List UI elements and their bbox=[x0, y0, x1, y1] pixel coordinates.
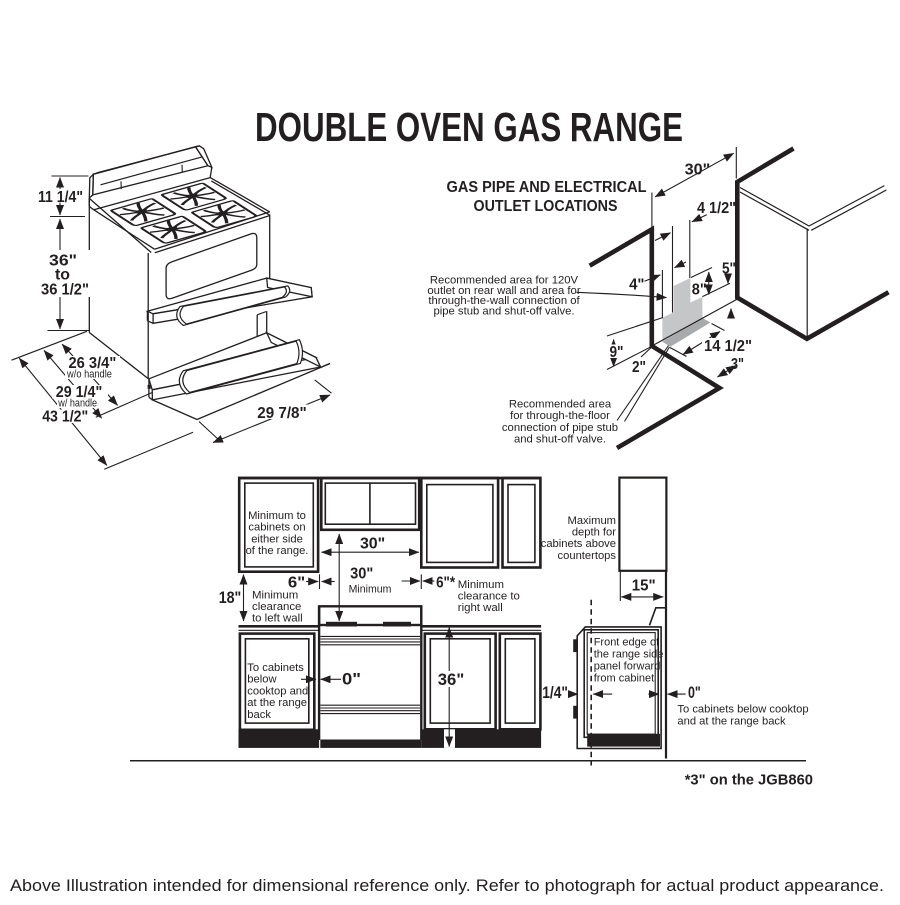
svg-text:below: below bbox=[247, 674, 277, 686]
svg-text:w/o handle: w/o handle bbox=[66, 369, 112, 381]
svg-text:either side: either side bbox=[251, 533, 303, 545]
svg-text:4": 4" bbox=[629, 277, 644, 294]
svg-text:Minimum to: Minimum to bbox=[248, 510, 306, 522]
svg-text:cabinets on: cabinets on bbox=[248, 522, 305, 534]
svg-text:5": 5" bbox=[722, 261, 736, 278]
svg-text:from cabinet: from cabinet bbox=[594, 672, 655, 684]
svg-text:to left wall: to left wall bbox=[252, 613, 303, 625]
svg-text:18": 18" bbox=[219, 588, 242, 607]
svg-text:30": 30" bbox=[350, 565, 373, 582]
svg-text:43 1/2": 43 1/2" bbox=[42, 409, 88, 426]
svg-text:15": 15" bbox=[632, 578, 656, 595]
svg-text:9": 9" bbox=[610, 344, 624, 361]
svg-text:*3" on the JGB860: *3" on the JGB860 bbox=[685, 772, 813, 789]
svg-text:To cabinets: To cabinets bbox=[247, 662, 304, 674]
svg-text:36 1/2": 36 1/2" bbox=[41, 282, 89, 299]
svg-text:for through-the-floor: for through-the-floor bbox=[510, 410, 610, 422]
svg-text:cabinets above: cabinets above bbox=[541, 538, 616, 550]
svg-text:Minimum: Minimum bbox=[252, 590, 298, 602]
svg-text:Minimum: Minimum bbox=[458, 579, 504, 591]
svg-text:2": 2" bbox=[632, 359, 646, 376]
svg-text:Minimum: Minimum bbox=[349, 583, 392, 595]
svg-text:DOUBLE OVEN GAS RANGE: DOUBLE OVEN GAS RANGE bbox=[255, 104, 683, 150]
svg-text:panel forward: panel forward bbox=[594, 660, 661, 672]
svg-text:4 1/2": 4 1/2" bbox=[697, 200, 736, 217]
svg-text:back: back bbox=[247, 709, 271, 721]
svg-text:the range side: the range side bbox=[594, 648, 664, 660]
svg-text:clearance: clearance bbox=[252, 601, 301, 613]
svg-text:depth for: depth for bbox=[572, 527, 616, 539]
svg-text:Recommended area: Recommended area bbox=[509, 399, 612, 411]
svg-text:11 1/4": 11 1/4" bbox=[38, 189, 83, 206]
svg-text:GAS PIPE AND ELECTRICAL: GAS PIPE AND ELECTRICAL bbox=[447, 179, 647, 196]
svg-text:of the range.: of the range. bbox=[246, 545, 309, 557]
svg-text:OUTLET LOCATIONS: OUTLET LOCATIONS bbox=[474, 198, 618, 215]
svg-text:29 7/8": 29 7/8" bbox=[257, 405, 306, 422]
svg-text:at the range: at the range bbox=[247, 697, 307, 709]
svg-text:Above Illustration intended fo: Above Illustration intended for dimensio… bbox=[10, 876, 884, 895]
svg-text:Front edge of: Front edge of bbox=[594, 636, 660, 648]
svg-text:right wall: right wall bbox=[458, 602, 503, 614]
svg-text:0": 0" bbox=[688, 683, 701, 702]
svg-text:1/4": 1/4" bbox=[542, 683, 568, 702]
svg-text:and at the range back: and at the range back bbox=[677, 715, 786, 727]
svg-text:0": 0" bbox=[342, 670, 361, 689]
svg-text:pipe stub and shut-off valve.: pipe stub and shut-off valve. bbox=[433, 305, 574, 317]
svg-text:To cabinets below cooktop: To cabinets below cooktop bbox=[677, 704, 808, 716]
svg-text:36": 36" bbox=[438, 670, 465, 689]
svg-text:6"*: 6"* bbox=[436, 574, 456, 591]
svg-text:30": 30" bbox=[360, 536, 385, 553]
svg-text:and shut-off valve.: and shut-off valve. bbox=[514, 434, 606, 446]
svg-text:30": 30" bbox=[685, 162, 711, 179]
svg-text:clearance to: clearance to bbox=[458, 591, 520, 603]
svg-text:3": 3" bbox=[731, 356, 744, 373]
svg-text:cooktop and: cooktop and bbox=[247, 685, 308, 697]
svg-text:connection of pipe stub: connection of pipe stub bbox=[502, 422, 618, 434]
svg-text:countertops: countertops bbox=[558, 550, 617, 562]
svg-text:8": 8" bbox=[692, 282, 707, 299]
svg-text:14 1/2": 14 1/2" bbox=[704, 338, 752, 355]
svg-text:Maximum: Maximum bbox=[568, 515, 616, 527]
